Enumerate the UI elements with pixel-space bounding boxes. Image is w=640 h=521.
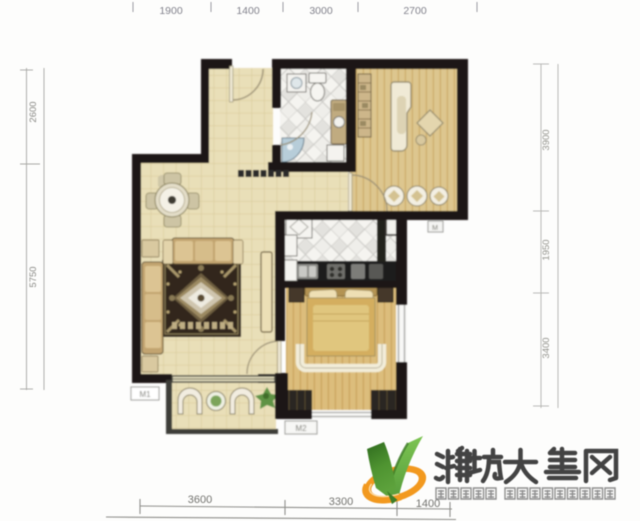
svg-text:3900: 3900	[541, 129, 552, 150]
svg-text:3600: 3600	[188, 494, 212, 506]
svg-text:1900: 1900	[159, 5, 183, 17]
svg-text:1950: 1950	[541, 239, 552, 260]
svg-text:3400: 3400	[541, 337, 552, 358]
svg-text:3000: 3000	[309, 5, 333, 17]
svg-text:1400: 1400	[236, 5, 260, 17]
svg-text:5750: 5750	[28, 266, 39, 287]
svg-text:2700: 2700	[403, 5, 427, 17]
svg-text:M1: M1	[139, 390, 151, 399]
svg-text:2600: 2600	[28, 101, 39, 122]
svg-text:M2: M2	[295, 424, 307, 433]
svg-text:3300: 3300	[329, 496, 353, 508]
svg-text:1400: 1400	[416, 498, 440, 510]
svg-text:M: M	[432, 225, 438, 232]
